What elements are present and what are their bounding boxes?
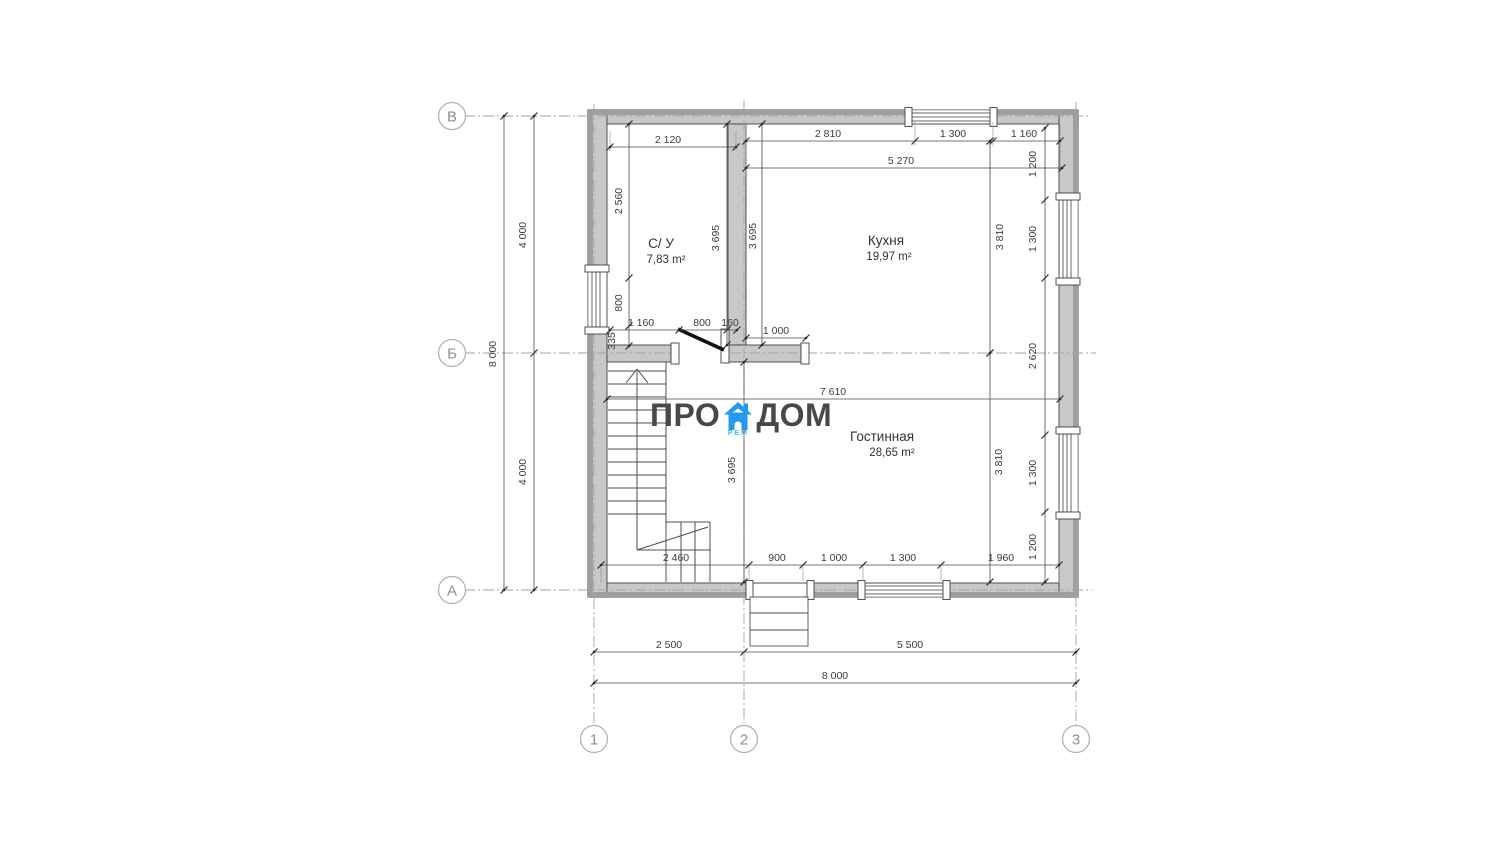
dimension-endpoint-dot [1075, 651, 1078, 654]
dimension-endpoint-dot [609, 329, 612, 332]
opening-jamb-cap [905, 108, 912, 127]
opening-jamb-cap [801, 343, 809, 364]
dimension-endpoint-dot [600, 564, 603, 567]
dimension-endpoint-dot [989, 581, 992, 584]
dimension-endpoint-dot [745, 337, 748, 340]
dimension-label: 4 000 [517, 222, 529, 248]
dimension-label: 8 000 [822, 670, 848, 682]
dimension-endpoint-dot [593, 682, 596, 685]
wall-outer-band [1073, 110, 1078, 597]
house-icon [724, 402, 752, 430]
dimension-endpoint-dot [628, 345, 631, 348]
dimension-endpoint-dot [745, 140, 748, 143]
dimension-label: 2 120 [655, 134, 681, 146]
dimension-label: 3 810 [993, 449, 1005, 475]
logo-text-rem: РЕМ [728, 430, 749, 437]
dimension-endpoint-dot [503, 115, 506, 118]
room-name-label: Гостинная [850, 429, 914, 444]
dimension-endpoint-dot [805, 337, 808, 340]
dimension-label: 1 160 [628, 317, 654, 329]
dimension-endpoint-dot [628, 123, 631, 126]
dimension-label: 1 300 [890, 552, 916, 564]
dimension-label: 160 [721, 317, 739, 329]
dimension-endpoint-dot [1044, 127, 1047, 130]
wall-outer-band [588, 110, 593, 597]
dimension-endpoint-dot [1075, 682, 1078, 685]
wall-opening [753, 584, 807, 597]
opening-jamb-cap [671, 343, 679, 364]
dimension-label: 4 000 [517, 459, 529, 485]
room-area-label: 19,97 m² [866, 251, 912, 263]
dimension-label: 2 460 [663, 552, 689, 564]
opening-jamb-cap [585, 265, 609, 272]
dimension-endpoint-dot [761, 344, 764, 347]
opening-jamb-cap [1056, 427, 1080, 434]
wall-opening [679, 346, 721, 362]
grid-axis-label: А [447, 583, 457, 600]
dimension-label: 1 960 [988, 552, 1014, 564]
dimension-endpoint-dot [593, 651, 596, 654]
opening-jamb-cap [1056, 193, 1080, 200]
floor-plan-canvas: 2 1202 8101 3001 1605 2701 2001 3002 620… [0, 0, 1500, 844]
dimension-label: 1 200 [1027, 151, 1039, 177]
opening-jamb-cap [1056, 278, 1080, 285]
grid-axis-label: 3 [1072, 732, 1080, 749]
dimension-endpoint-dot [989, 352, 992, 355]
dimension-label: 900 [768, 552, 786, 564]
stair-line [637, 527, 708, 550]
dimension-endpoint-dot [533, 589, 536, 592]
dimension-endpoint-dot [503, 589, 506, 592]
wall [728, 345, 801, 362]
dimension-endpoint-dot [735, 146, 738, 149]
dimension-label: 5 500 [897, 639, 923, 651]
room-name-label: Кухня [868, 233, 904, 248]
dimension-label: 2 500 [656, 639, 682, 651]
dimension-label: 1 200 [1027, 534, 1039, 560]
wall-outer-band [588, 592, 1078, 597]
logo-house-block: РЕМ [724, 402, 752, 437]
logo-text-pro: ПРО [650, 400, 720, 430]
dimension-endpoint-dot [1044, 581, 1047, 584]
grid-axis-label: В [447, 109, 457, 126]
dimension-label: 1 000 [763, 325, 789, 337]
grid-axis-label: 1 [590, 732, 598, 749]
opening-jamb-cap [943, 581, 950, 600]
dimension-endpoint-dot [1059, 140, 1062, 143]
wall [728, 124, 746, 345]
dimension-label: 335 [606, 332, 618, 350]
dimension-label: 800 [693, 317, 711, 329]
opening-jamb-cap [858, 581, 865, 600]
dimension-endpoint-dot [533, 115, 536, 118]
dimension-endpoint-dot [989, 140, 992, 143]
dimension-endpoint-dot [736, 329, 739, 332]
grid-axis-label: 2 [740, 732, 748, 749]
dimension-label: 3 695 [747, 223, 759, 249]
grid-axis-label: Б [447, 346, 457, 363]
dimension-endpoint-dot [1058, 564, 1061, 567]
dimension-label: 2 810 [815, 128, 841, 140]
dimension-endpoint-dot [743, 361, 746, 364]
dimension-label: 800 [613, 294, 625, 312]
dimension-endpoint-dot [726, 344, 729, 347]
dimension-endpoint-dot [606, 398, 609, 401]
dimension-endpoint-dot [1059, 398, 1062, 401]
dimension-label: 2 620 [1027, 343, 1039, 369]
dimension-label: 1 160 [1011, 128, 1037, 140]
dimension-label: 5 270 [888, 155, 914, 167]
dimension-label: 3 695 [726, 457, 738, 483]
opening-jamb-cap [1056, 512, 1080, 519]
dimension-endpoint-dot [726, 123, 729, 126]
dimension-label: 1 300 [1027, 226, 1039, 252]
dimension-endpoint-dot [1061, 167, 1064, 170]
dimension-label: 2 560 [613, 188, 625, 214]
logo-text-dom: ДОМ [756, 400, 832, 430]
dimension-label: 3 810 [994, 224, 1006, 250]
room-area-label: 28,65 m² [869, 447, 915, 459]
dimension-endpoint-dot [609, 146, 612, 149]
dimension-label: 1 300 [940, 128, 966, 140]
wall-outer-band [588, 110, 1078, 115]
dimension-endpoint-dot [761, 123, 764, 126]
dimension-label: 8 000 [487, 341, 499, 367]
room-area-label: 7,83 m² [647, 254, 686, 266]
dimension-endpoint-dot [745, 167, 748, 170]
pro-dom-logo: ПРО РЕМ ДОМ [650, 400, 832, 437]
dimension-label: 3 695 [710, 225, 722, 251]
dimension-endpoint-dot [743, 581, 746, 584]
room-name-label: С/ У [648, 236, 674, 251]
dimension-label: 1 000 [821, 552, 847, 564]
entrance-porch [750, 597, 808, 646]
opening-jamb-cap [990, 108, 997, 127]
dimension-label: 1 300 [1027, 460, 1039, 486]
